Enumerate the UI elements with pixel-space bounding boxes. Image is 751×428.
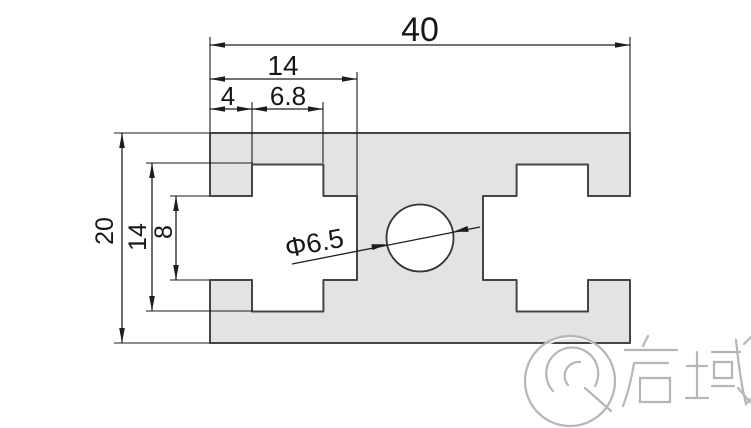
dim-total-height: 20: [91, 133, 125, 343]
watermark: 启域: [525, 336, 751, 428]
technical-drawing-page: 40 14 4 6.8 20 14 8: [0, 0, 751, 428]
dim-slot-depth: 14: [210, 50, 357, 82]
center-hole: [387, 205, 454, 272]
dim-label-hole-dia: Φ6.5: [282, 223, 346, 264]
dim-label-14-top: 14: [267, 50, 298, 81]
watermark-brand-text: 启域: [622, 346, 750, 418]
dim-label-6-8: 6.8: [270, 81, 306, 111]
dim-label-20: 20: [91, 217, 119, 245]
dim-mouth-and-cavity: 4 6.8: [210, 81, 323, 112]
dim-label-4: 4: [221, 81, 235, 111]
profile-drawing-svg: 40 14 4 6.8 20 14 8: [0, 0, 751, 428]
dim-label-14-left: 14: [124, 223, 152, 251]
dim-label-40: 40: [401, 11, 439, 49]
dim-mouth-height: 8: [150, 196, 179, 280]
dim-label-8: 8: [150, 225, 178, 239]
dim-total-width: 40: [210, 11, 630, 49]
